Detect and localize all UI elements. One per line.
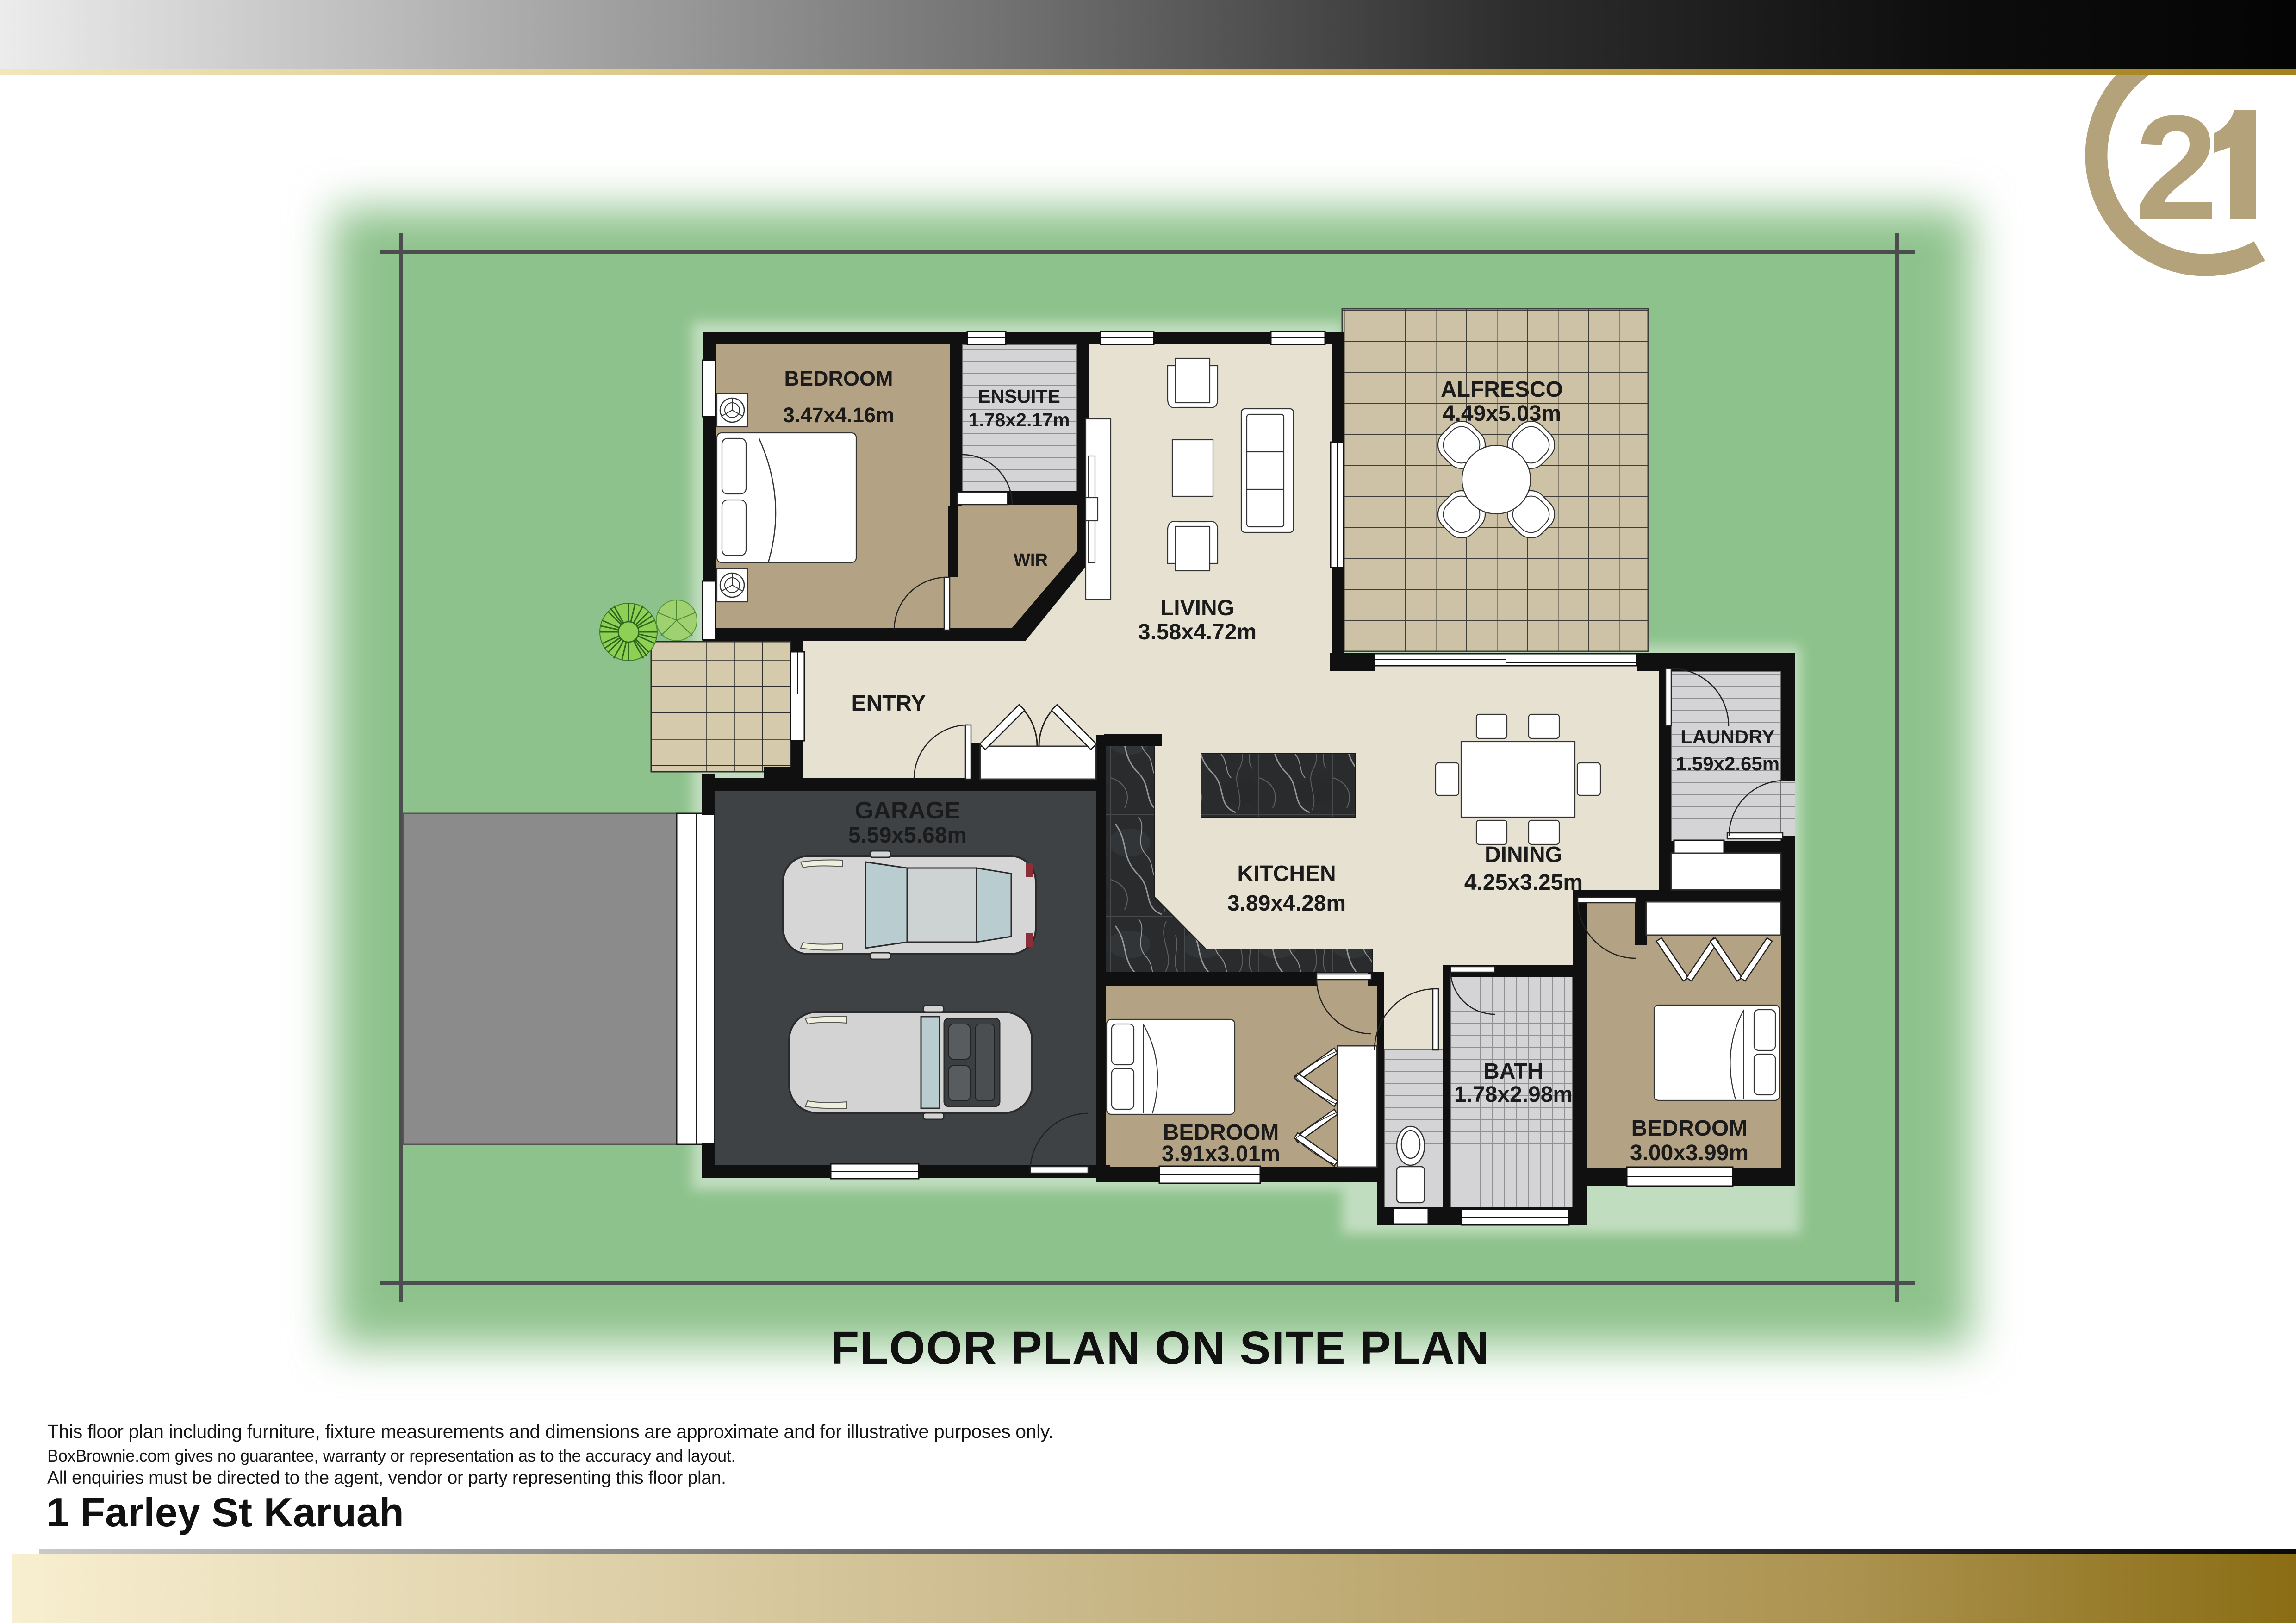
svg-text:3.89x4.28m: 3.89x4.28m [1227,891,1346,916]
svg-text:3.47x4.16m: 3.47x4.16m [783,403,894,427]
svg-text:WIR: WIR [1014,550,1048,570]
svg-text:4.25x3.25m: 4.25x3.25m [1464,870,1583,895]
svg-text:FLOOR PLAN ON SITE PLAN: FLOOR PLAN ON SITE PLAN [831,1322,1490,1374]
svg-text:3.58x4.72m: 3.58x4.72m [1138,620,1257,644]
svg-text:1 Farley St Karuah: 1 Farley St Karuah [46,1489,404,1535]
svg-text:5.59x5.68m: 5.59x5.68m [848,823,967,848]
svg-text:KITCHEN: KITCHEN [1237,862,1336,886]
svg-text:DINING: DINING [1485,843,1562,867]
svg-text:1.78x2.98m: 1.78x2.98m [1454,1082,1573,1107]
svg-text:This floor plan including furn: This floor plan including furniture, fix… [47,1421,1053,1442]
svg-text:2: 2 [2135,85,2218,251]
svg-text:BEDROOM: BEDROOM [784,367,893,390]
svg-text:LAUNDRY: LAUNDRY [1680,726,1775,748]
svg-text:1.59x2.65m: 1.59x2.65m [1676,753,1780,775]
svg-text:BATH: BATH [1483,1059,1543,1084]
svg-text:ALFRESCO: ALFRESCO [1441,377,1563,402]
svg-text:BoxBrownie.com gives no guaran: BoxBrownie.com gives no guarantee, warra… [47,1446,735,1465]
svg-text:1.78x2.17m: 1.78x2.17m [969,409,1070,431]
svg-text:GARAGE: GARAGE [855,797,960,824]
svg-text:4.49x5.03m: 4.49x5.03m [1443,401,1561,426]
svg-text:LIVING: LIVING [1160,596,1234,620]
svg-text:BEDROOM: BEDROOM [1631,1116,1748,1141]
svg-text:3.91x3.01m: 3.91x3.01m [1162,1142,1280,1166]
svg-text:3.00x3.99m: 3.00x3.99m [1630,1141,1748,1165]
svg-text:All enquiries must be directed: All enquiries must be directed to the ag… [47,1468,726,1488]
svg-text:ENSUITE: ENSUITE [978,386,1060,407]
svg-text:ENTRY: ENTRY [852,691,926,716]
